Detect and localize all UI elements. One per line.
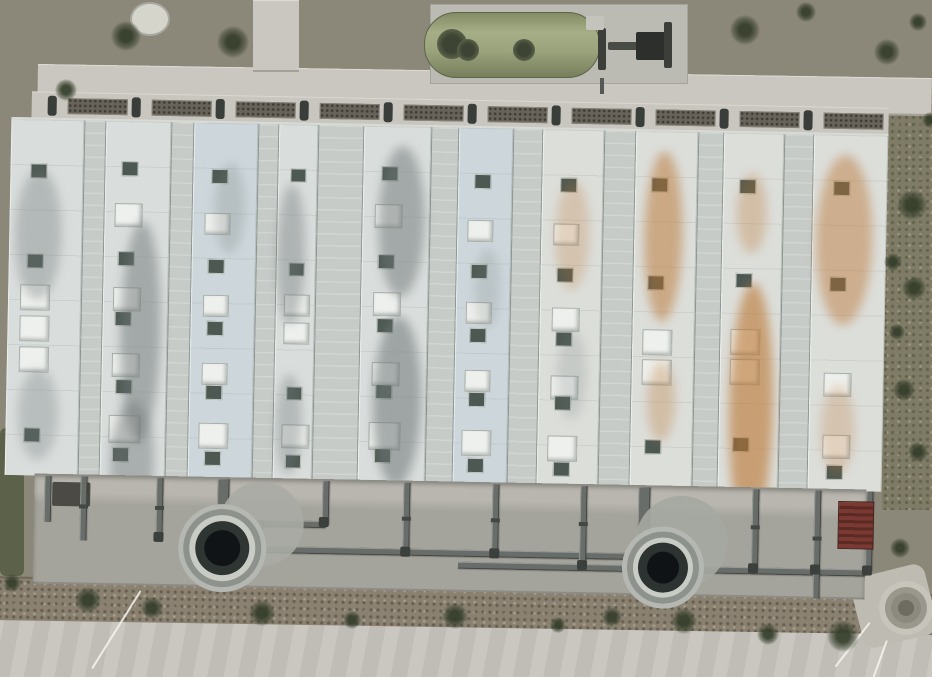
shrub [217, 26, 249, 58]
thin-pipe-line-2 [872, 640, 888, 677]
shrub [796, 2, 816, 22]
shrub [343, 611, 361, 629]
shrub [730, 15, 760, 45]
shrub [757, 623, 779, 645]
shrub [3, 574, 21, 592]
shrub [141, 597, 163, 619]
shrub [893, 379, 915, 401]
shrub [671, 608, 697, 634]
shrub [75, 587, 101, 613]
shrub [922, 112, 932, 128]
shrub [909, 13, 927, 31]
shrub [249, 600, 275, 626]
shrub [889, 324, 905, 340]
shrub [827, 620, 859, 652]
shrub [902, 276, 926, 300]
shrub [884, 253, 902, 271]
shrub [908, 442, 928, 462]
shrub [602, 607, 622, 627]
foreground-details [0, 0, 932, 677]
shrub [890, 538, 910, 558]
shrub [55, 79, 77, 101]
shrub [874, 39, 900, 65]
shrub [111, 21, 141, 51]
aerial-photo-industrial-facility [0, 0, 932, 677]
shrub [442, 603, 468, 629]
shrub [550, 617, 566, 633]
shrub [897, 190, 927, 220]
